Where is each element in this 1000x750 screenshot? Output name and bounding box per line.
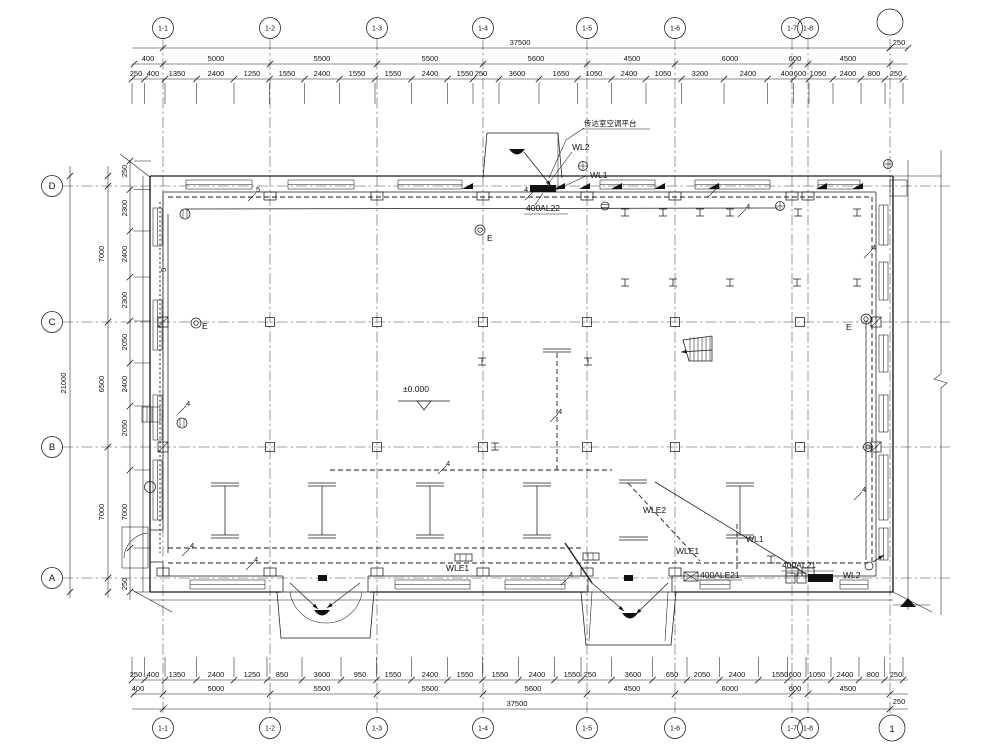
door1-lamp-icon: [314, 610, 330, 616]
dim-text: 250: [890, 670, 903, 679]
dim-text: 4500: [624, 684, 641, 693]
axis-bubble-label: C: [49, 317, 56, 328]
dim-text: 800: [868, 69, 881, 78]
circuit-solid-top: [185, 208, 778, 209]
dim-text: 7000: [120, 504, 129, 521]
emergency-light-icon: [475, 225, 485, 235]
site-line-right-break: [934, 150, 947, 615]
dim-text: 2400: [120, 376, 129, 393]
dim-text: 400: [147, 69, 160, 78]
note-leader: [549, 128, 584, 178]
dim-text: 3600: [625, 670, 642, 679]
dim-text: 800: [867, 670, 880, 679]
emergency-light-inner: [864, 317, 868, 321]
door-left-porch: [122, 527, 148, 568]
door-left-leaf-arc: [124, 533, 148, 558]
dim-text: 2050: [120, 334, 129, 351]
emergency-label: E: [487, 233, 493, 243]
axis-bubble-label: A: [49, 573, 56, 584]
wle2-label: WLE2: [643, 505, 666, 515]
dim-text: 250: [584, 670, 597, 679]
axis-bubble-label: 1-4: [478, 26, 488, 33]
annotation-texts: WL2WL1400AL22传达室空调平台WLE2WLE1WLE1WL1WL240…: [159, 118, 876, 580]
dim-text: 3200: [692, 69, 709, 78]
door2-lamp-icon: [622, 613, 638, 619]
dim-text: 600: [789, 684, 802, 693]
level-triangle-icon: [417, 401, 431, 410]
dim-text: 250: [893, 697, 906, 706]
conductor-count-label: 4: [558, 407, 562, 416]
electrical-wiring: [160, 128, 872, 614]
canopy-lamp-icon: [509, 149, 525, 155]
canopy-outline: [483, 133, 562, 178]
emergency-light-inner: [194, 321, 198, 325]
emergency-label: E: [202, 321, 208, 331]
dim-text: 1050: [655, 69, 672, 78]
dim-text: 250: [893, 38, 906, 47]
dim-text: 1650: [553, 69, 570, 78]
axis-bubble-label: B: [49, 442, 55, 453]
door1-leaf-arc: [326, 592, 362, 623]
dim-text: 2400: [837, 670, 854, 679]
dim-text: 1550: [492, 670, 509, 679]
dim-text: 1550: [279, 69, 296, 78]
dim-text: 2400: [314, 69, 331, 78]
switch-block-icon: [624, 575, 633, 581]
dim-text: 2050: [694, 670, 711, 679]
axis-bubble-label: 1-5: [582, 726, 592, 733]
axis-bubble-label: 1-6: [670, 726, 680, 733]
dim-text: 2300: [120, 200, 129, 217]
axis-bubbles: 1-11-11-21-21-31-31-41-41-51-51-61-61-71…: [42, 9, 906, 741]
dim-text: 250: [130, 670, 143, 679]
conductor-count-label: 4: [569, 570, 573, 579]
level-label: ±0.000: [403, 384, 429, 394]
exhaust-fan-icon: [601, 202, 609, 210]
dim-text: 5000: [208, 684, 225, 693]
conductor-count-label: 4: [872, 243, 876, 252]
ale21-label: 400ALE21: [700, 570, 740, 580]
axis-bubble-label: 1-7: [787, 26, 797, 33]
emergency-label: E: [846, 322, 852, 332]
leader-line: [327, 583, 360, 608]
conductor-count-label: 4: [190, 541, 194, 550]
corner-diagonal-bottom-left: [132, 590, 172, 612]
equipment-symbols: [211, 336, 754, 540]
dim-text: 2400: [729, 670, 746, 679]
dim-text: 600: [794, 69, 807, 78]
dim-text: 2400: [621, 69, 638, 78]
dim-text: 250: [120, 165, 129, 178]
dim-text: 1350: [169, 670, 186, 679]
dim-text: 5500: [422, 684, 439, 693]
dim-text: 2400: [208, 69, 225, 78]
dim-text: 2400: [120, 246, 129, 263]
dim-text: 6000: [722, 54, 739, 63]
dim-text: 950: [354, 670, 367, 679]
dim-text: 4500: [840, 684, 857, 693]
conductor-count-label: 5: [256, 185, 260, 194]
wl2-bottom-label: WL2: [843, 570, 861, 580]
dim-text: 250: [120, 578, 129, 591]
floor-plan-drawing: 2504001350240012501550240015501550240015…: [0, 0, 1000, 750]
dim-text: 7000: [97, 246, 106, 263]
dim-text: 400: [781, 69, 794, 78]
dim-text: 4500: [840, 54, 857, 63]
dim-text: 1050: [586, 69, 603, 78]
wle1-label-2: WLE1: [446, 563, 469, 573]
dim-text: 1550: [385, 670, 402, 679]
conductor-count-label: 4: [446, 459, 450, 468]
al22-label: 400AL22: [526, 203, 560, 213]
dim-text: 4500: [624, 54, 641, 63]
vent-wedge-icon: [462, 183, 473, 189]
dim-text: 5500: [314, 684, 331, 693]
dim-text: 1050: [809, 670, 826, 679]
floor-plan-page: 2504001350240012501550240015501550240015…: [0, 0, 1000, 750]
dimension-chains: 2504001350240012501550240015501550240015…: [59, 38, 911, 712]
axis-bubble-label: 1-2: [265, 726, 275, 733]
dim-text: 1550: [457, 69, 474, 78]
switch-box-icon: [583, 553, 599, 560]
dim-text: 1250: [244, 670, 261, 679]
axis-bubble-label: 1-1: [158, 726, 168, 733]
vent-wedge-icon: [579, 183, 590, 189]
dim-text: 1050: [810, 69, 827, 78]
dim-text: 2050: [120, 420, 129, 437]
dim-text: 5600: [528, 54, 545, 63]
axis-bubble-label: 1-3: [372, 726, 382, 733]
conductor-count-label: 4: [716, 182, 720, 191]
dim-text: 5500: [422, 54, 439, 63]
dim-text: 1550: [772, 670, 789, 679]
fan-fixture-icon: [180, 209, 190, 219]
panel-400AL22: [530, 185, 556, 192]
axis-bubble-label: 1-6: [670, 26, 680, 33]
axis-bubble-label: 1-1: [158, 26, 168, 33]
conductor-tick: [178, 406, 186, 414]
dim-text: 2400: [422, 69, 439, 78]
dim-text: 3600: [314, 670, 331, 679]
grid-axes: [62, 39, 950, 716]
dim-text: 1350: [169, 69, 186, 78]
door-left-jambs: [150, 530, 163, 562]
conductor-count-label: 4: [524, 185, 528, 194]
conductor-tick: [182, 548, 190, 556]
leader-line: [636, 583, 668, 614]
axis-bubble-label: 1-7: [787, 726, 797, 733]
dim-text: 7000: [97, 504, 106, 521]
axis-bubble-label: 1-5: [582, 26, 592, 33]
axis-bubble-label: 1-8: [803, 726, 813, 733]
conductor-count-label: 4: [746, 202, 750, 211]
vent-wedge-icon: [852, 183, 863, 189]
conductor-tick: [864, 250, 872, 258]
axis-bubble-label: 1-2: [265, 26, 275, 33]
dim-text: 6000: [722, 684, 739, 693]
electrical-symbols: [145, 129, 893, 619]
axis-bubble-label: 1-8: [803, 26, 813, 33]
dim-text: 2400: [422, 670, 439, 679]
dim-text: 1550: [385, 69, 402, 78]
dim-text: 600: [789, 670, 802, 679]
corner-diagonal-bottom-right: [893, 592, 932, 612]
conductor-tick: [738, 209, 746, 217]
dim-text: 3600: [509, 69, 526, 78]
dim-text: 5600: [525, 684, 542, 693]
dim-text: 400: [147, 670, 160, 679]
platform-note: 传达室空调平台: [584, 118, 637, 128]
dim-text: 5500: [314, 54, 331, 63]
axis-bubble-top-right: [877, 9, 903, 35]
wl2-fixture-icon: [865, 562, 873, 570]
wl2-top-label: WL2: [572, 142, 590, 152]
wl1-bottom-label: WL1: [746, 534, 764, 544]
switch-block-icon: [318, 575, 327, 581]
dim-text: 250: [890, 69, 903, 78]
dim-text: 400: [132, 684, 145, 693]
leader-line: [524, 152, 551, 186]
dim-text: 250: [475, 69, 488, 78]
axis-bubble-label: 1-3: [372, 26, 382, 33]
al21-label: 400AL21: [782, 560, 816, 570]
stair-outline: [683, 336, 712, 361]
panel-400AL21: [808, 574, 833, 582]
dim-text: 37500: [507, 699, 528, 708]
wle1-label: WLE1: [676, 546, 699, 556]
dim-text: 37500: [510, 38, 531, 47]
dim-text: 1550: [564, 670, 581, 679]
door1-leaf-arc: [290, 592, 326, 623]
leader-line: [592, 583, 624, 611]
dim-text: 2400: [840, 69, 857, 78]
dim-text: 2400: [740, 69, 757, 78]
wl1-top-label: WL1: [590, 170, 608, 180]
leader-arrowhead: [327, 603, 333, 608]
conductor-count-label: 4: [186, 399, 190, 408]
axis-bubble-label: 1: [889, 724, 894, 735]
dim-text: 6500: [97, 376, 106, 393]
dim-text: 250: [130, 69, 143, 78]
emergency-light-inner: [478, 228, 482, 232]
emergency-light-icon: [191, 318, 201, 328]
axis-bubble-label: D: [49, 181, 56, 192]
conductor-tick: [854, 492, 862, 500]
dim-text: 2400: [208, 670, 225, 679]
panel-x-hatch: [684, 572, 698, 581]
dim-text: 400: [142, 54, 155, 63]
conductor-count-label: 5: [159, 268, 168, 272]
dim-text: 2300: [120, 292, 129, 309]
dim-text: 2400: [529, 670, 546, 679]
wle-box-icon: [455, 554, 472, 561]
dim-text: 1550: [349, 69, 366, 78]
axis-bubble-label: 1-4: [478, 726, 488, 733]
fan-fixture-icon: [177, 418, 187, 428]
columns-pilasters: [142, 192, 881, 576]
dim-text: 1250: [244, 69, 261, 78]
conductor-count-label: 4: [862, 485, 866, 494]
dim-text: 850: [276, 670, 289, 679]
dim-text: 600: [789, 54, 802, 63]
conductor-count-label: 4: [254, 555, 258, 564]
windows: [153, 180, 888, 589]
dim-text: 650: [666, 670, 679, 679]
conductor-tick: [708, 189, 716, 197]
dim-text: 21000: [59, 373, 68, 394]
dim-text: 5000: [208, 54, 225, 63]
dim-text: 1550: [457, 670, 474, 679]
